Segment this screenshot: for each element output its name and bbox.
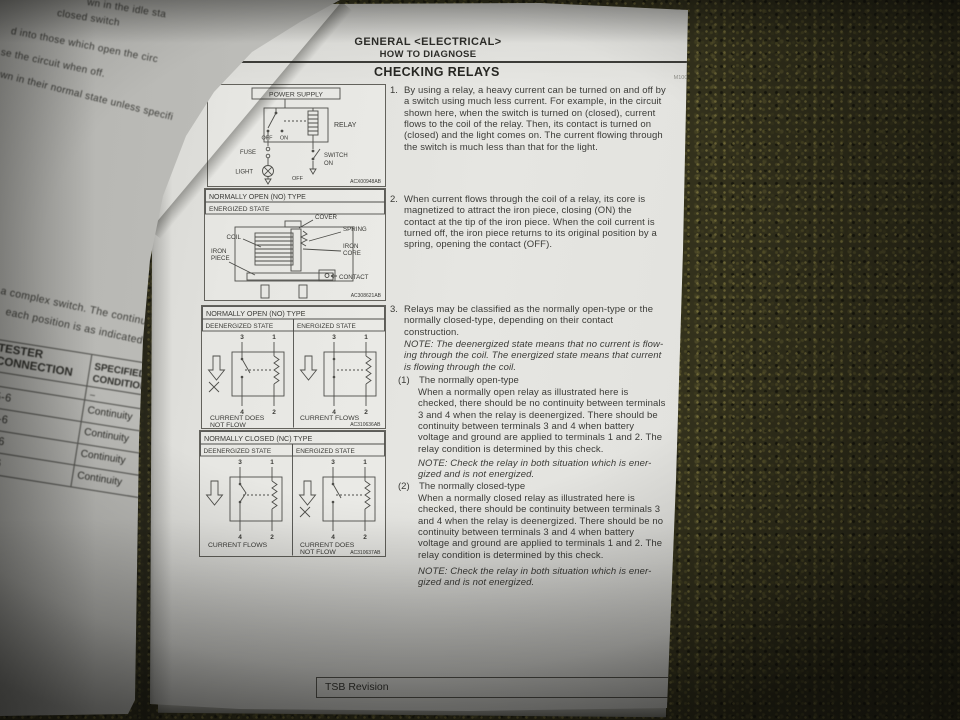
right-caption: CURRENT FLOWS [300,415,360,422]
section-heading: CHECKING RELAYS [374,65,500,79]
diagram-title: NORMALLY OPEN (NO) TYPE [206,309,306,318]
diagram-code: ACX00948AB [350,179,382,185]
terminal-3: 3 [332,334,336,341]
note-deenergized: NOTE: The deenergized state means that n… [404,339,728,373]
coil-zigzag [365,477,370,521]
open-contact-arm [242,359,250,373]
off-label: OFF [262,136,274,142]
current-arrow [300,481,316,505]
diagram-code: AC308621AB [351,293,382,299]
terminal-3: 3 [240,334,244,341]
item-3-number: 3. [390,304,398,315]
on-label: ON [280,136,288,142]
fuse-label: FUSE [240,150,256,156]
coil-label: COIL [227,234,242,241]
off2-label: OFF [292,176,304,182]
terminal-1: 1 [270,459,274,466]
no-flow-x-mark [209,382,219,392]
diagram-code: AC310636AB [350,422,381,428]
terminal-4: 4 [238,534,242,541]
light-label: LIGHT [235,170,253,176]
iron-piece-label-1: IRON [211,248,226,255]
coil-zigzag [272,477,277,521]
right-caption-2: NOT FLOW [300,549,336,556]
left-caption-2: NOT FLOW [210,422,246,428]
terminal-1: 1 [364,334,368,341]
terminal-4: 4 [331,534,335,541]
item-1-number: 1. [390,85,398,96]
terminal-1: 1 [272,334,276,341]
item-1-text: By using a relay, a heavy current can be… [404,85,728,153]
state-label: ENERGIZED STATE [209,206,270,213]
spring-symbol [301,231,307,246]
terminal-1: 1 [363,459,367,466]
terminal-2: 2 [270,534,274,541]
iron-core-label-2: CORE [343,250,361,257]
relay-label: RELAY [334,122,357,129]
sub-1-number: (1) [398,375,410,386]
terminal-3: 3 [238,459,242,466]
diagram-code: AC310637AB [350,550,381,556]
terminal-2: 2 [272,409,276,416]
item-2-text: When current flows through the coil of a… [404,194,728,251]
terminal-2: 2 [364,409,368,416]
page-header-subsection: HOW TO DIAGNOSE [208,49,648,60]
iron-core-label-1: IRON [343,243,358,250]
coil-zigzag [274,352,279,396]
spring-label: SPRING [343,226,367,233]
left-caption-1: CURRENT DOES [210,415,265,422]
right-state-label: ENERGIZED STATE [296,448,355,455]
left-state-label: DEENERGIZED STATE [204,448,272,455]
sub-1-title: The normally open-type [419,375,519,386]
current-arrow [209,356,225,380]
left-state-label: DEENERGIZED STATE [206,323,274,330]
terminal-2: 2 [363,534,367,541]
tsb-revision-label: TSB Revision [325,681,389,693]
iron-piece-section [247,273,333,280]
cover-label: COVER [315,214,338,221]
no-flow-x-mark [300,507,310,517]
diagram-title: NORMALLY CLOSED (NC) TYPE [204,434,312,443]
contact-label: CONTACT [339,274,369,281]
normally-open-type-diagram: NORMALLY OPEN (NO) TYPE DEENERGIZED STAT… [201,305,386,429]
current-arrow [207,481,223,505]
right-state-label: ENERGIZED STATE [297,323,356,330]
switch-label: SWITCH [324,153,348,159]
iron-piece-label-2: PIECE [211,255,230,262]
current-arrow [301,356,317,380]
coil-zigzag [366,352,371,396]
tsb-revision-box: TSB Revision [316,677,684,698]
diagram-title: NORMALLY OPEN (NO) TYPE [209,194,306,201]
normally-closed-type-diagram: NORMALLY CLOSED (NC) TYPE DEENERGIZED ST… [199,430,386,557]
switch-on-label: ON [324,161,333,167]
sub-2-title: The normally closed-type [419,481,525,492]
terminal-3: 3 [331,459,335,466]
sub-2-number: (2) [398,481,410,492]
right-caption-1: CURRENT DOES [300,542,355,549]
relay-structure-diagram: NORMALLY OPEN (NO) TYPE ENERGIZED STATE … [204,188,386,301]
item-2-number: 2. [390,194,398,205]
open-contact-arm [333,484,341,498]
left-caption: CURRENT FLOWS [208,542,268,549]
relay-switch-arm [268,113,276,128]
item-3-text: Relays may be classified as the normally… [404,304,728,338]
closed-contact-arm [240,484,246,502]
